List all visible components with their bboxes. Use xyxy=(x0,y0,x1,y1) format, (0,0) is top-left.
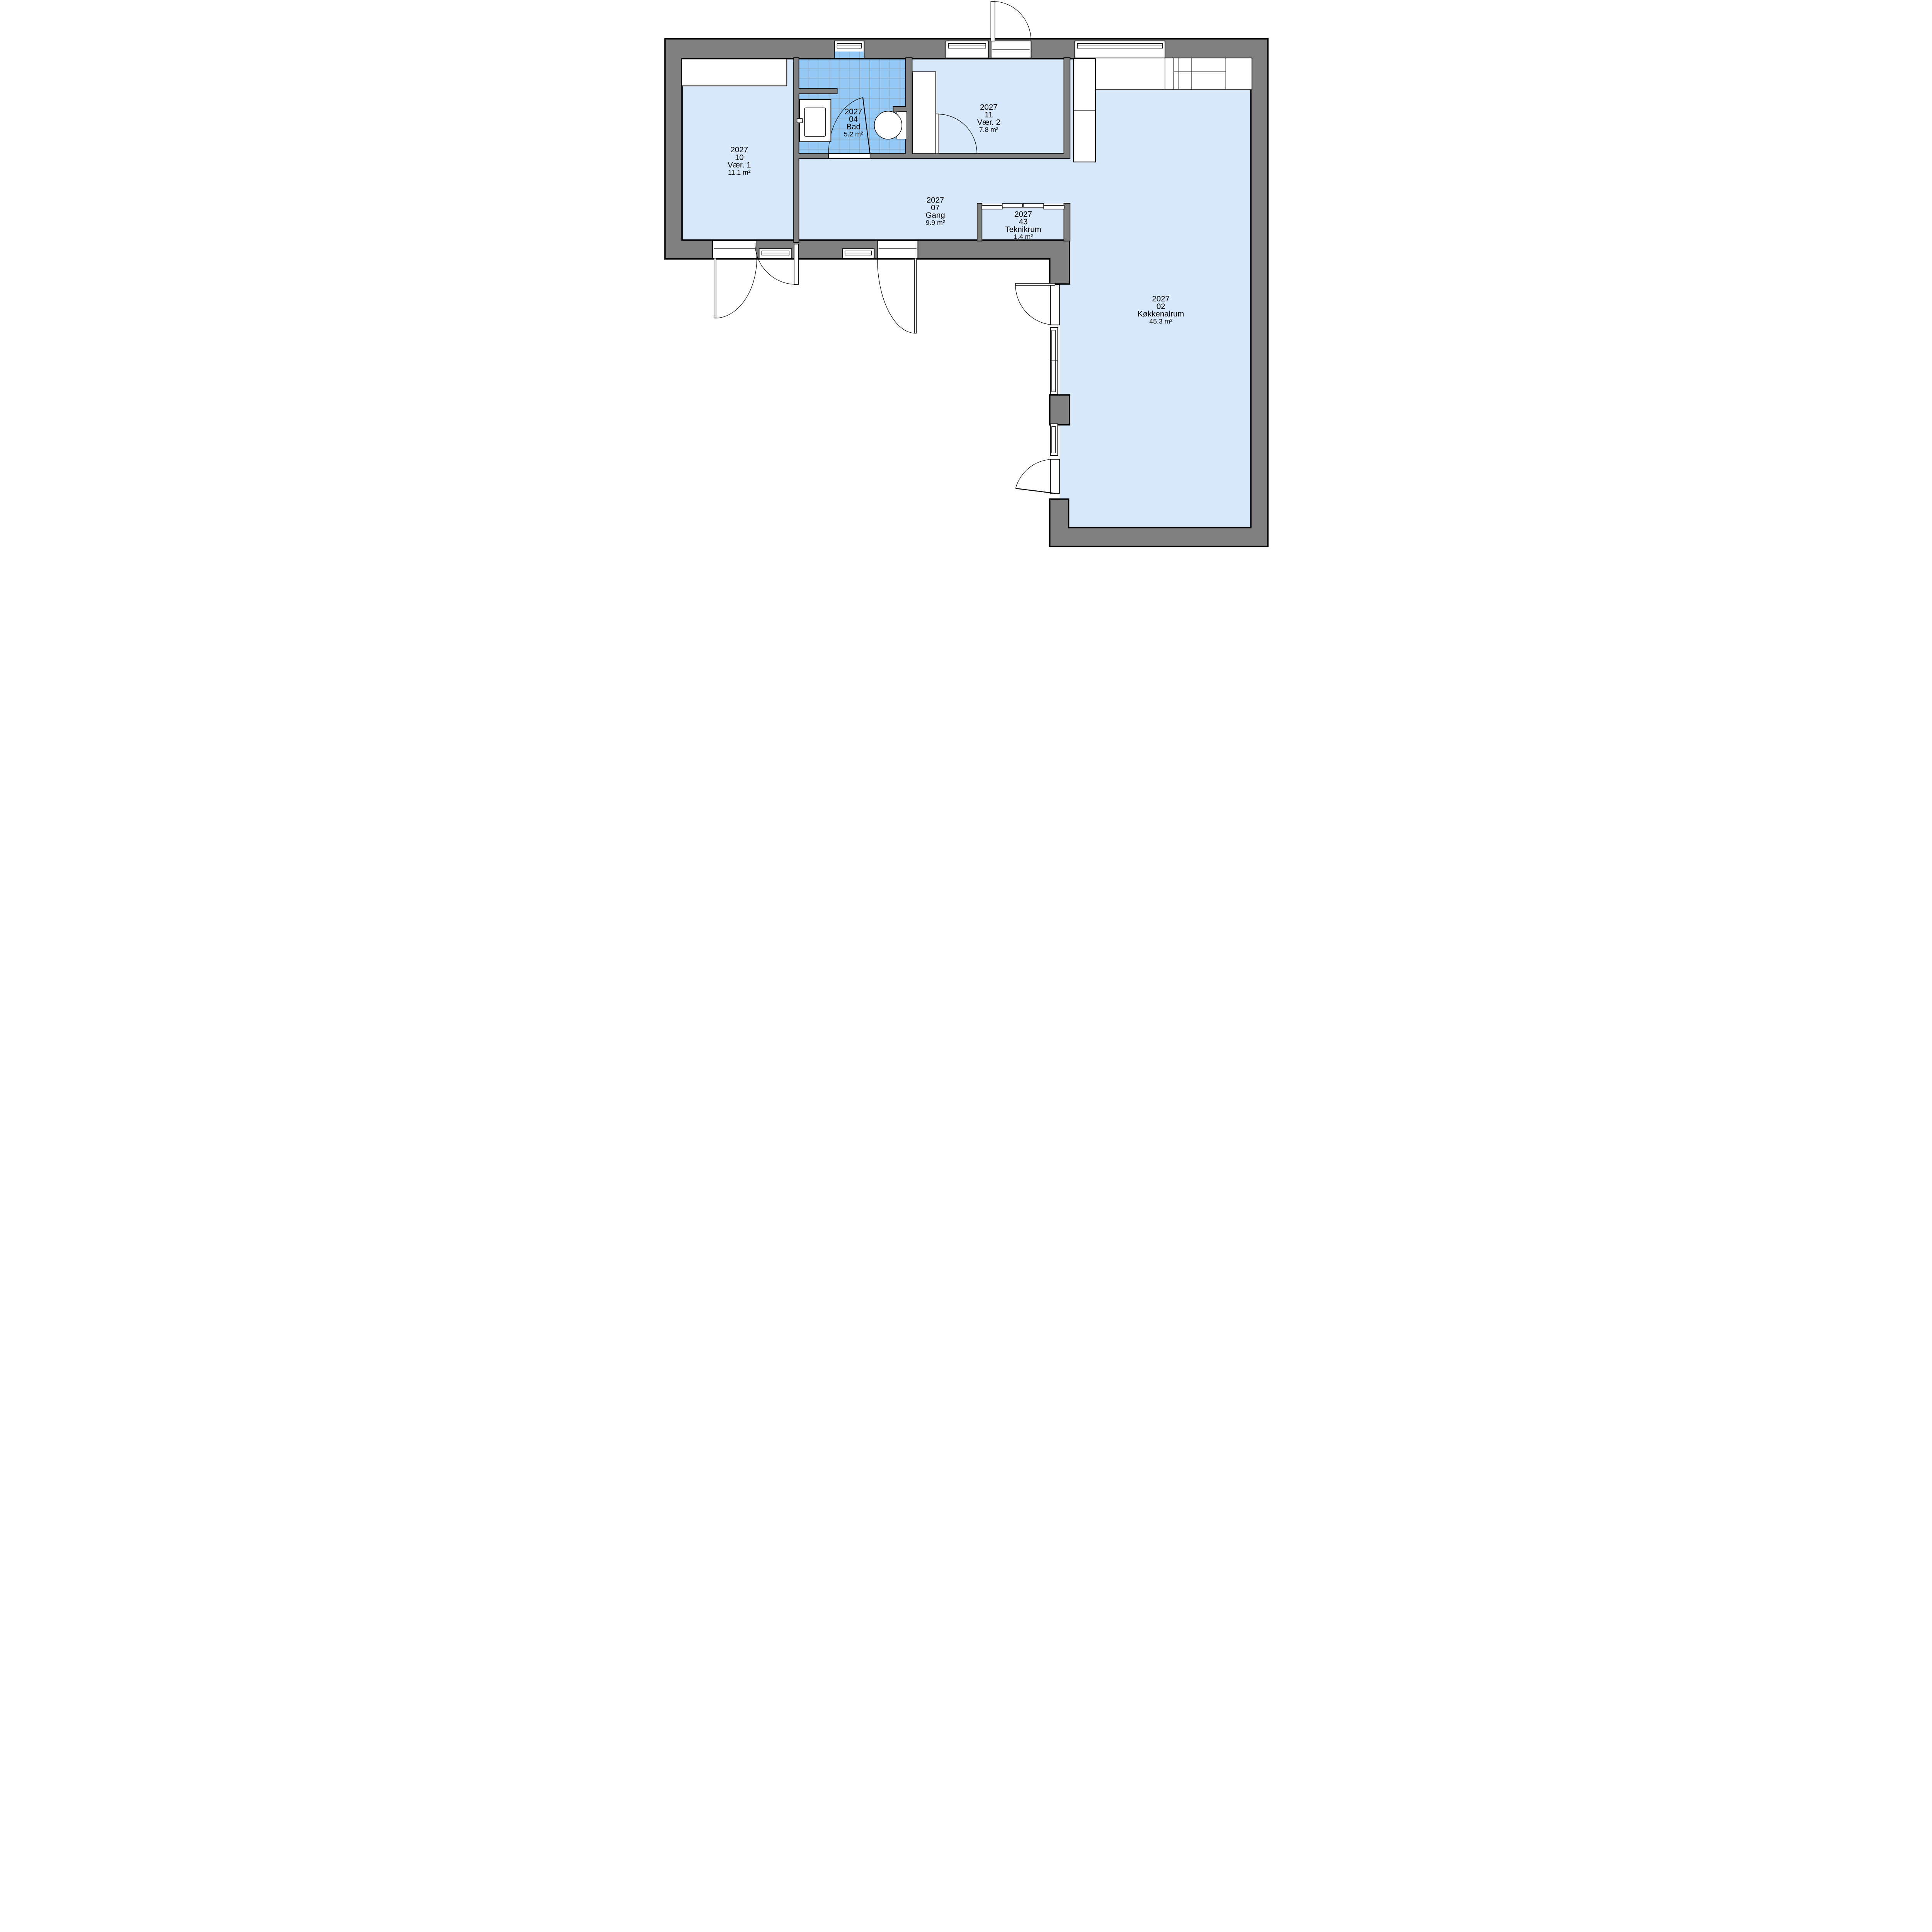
door-divider xyxy=(1022,204,1023,207)
room-name: Teknikrum xyxy=(1005,225,1041,234)
room-label-bedroom1: 2027 10 Vær. 1 11.1 m² xyxy=(728,145,751,176)
room-name: Køkkenalrum xyxy=(1138,310,1184,318)
room-label-bedroom2: 2027 11 Vær. 2 7.8 m² xyxy=(977,103,1000,133)
entry-door xyxy=(991,2,1031,58)
door-arc xyxy=(715,258,757,318)
room-name: Vær. 2 xyxy=(977,118,1000,127)
kitchen-left-door-upper xyxy=(1015,283,1059,325)
floor-plan-svg: 2027 10 Vær. 1 11.1 m² 2027 04 Bad 5.2 m… xyxy=(664,0,1269,548)
room-area: 11.1 m² xyxy=(728,168,751,176)
entry-door-arc xyxy=(993,2,1031,41)
room-name: Vær. 1 xyxy=(728,160,751,169)
door-arc xyxy=(877,258,915,333)
sink xyxy=(804,108,825,136)
kitchen-left-window-lower xyxy=(1050,424,1058,456)
kitchen-left-door-lower xyxy=(1015,459,1060,493)
door-leaf xyxy=(914,258,916,333)
room-name: Bad xyxy=(846,122,860,131)
door-leaf xyxy=(935,114,939,154)
hall-window xyxy=(842,249,874,259)
room-label-hall: 2027 07 Gang 9.9 m² xyxy=(925,196,945,226)
room-area: 7.8 m² xyxy=(979,126,998,133)
toilet xyxy=(874,111,906,139)
room-label-bathroom: 2027 04 Bad 5.2 m² xyxy=(844,107,863,138)
room-area: 45.3 m² xyxy=(1149,318,1172,325)
bedroom1-closet xyxy=(681,59,787,86)
kitchen-counter xyxy=(1095,58,1252,90)
door-leaf xyxy=(1015,488,1055,493)
room-area: 5.2 m² xyxy=(844,130,863,138)
faucet xyxy=(797,119,802,123)
floor-plan: 2027 10 Vær. 1 11.1 m² 2027 04 Bad 5.2 m… xyxy=(664,0,1269,548)
door-arc xyxy=(1015,285,1054,325)
bedroom1-window xyxy=(759,249,792,259)
floors xyxy=(681,58,1252,528)
room-area: 9.9 m² xyxy=(925,219,945,226)
toilet-bowl xyxy=(874,111,901,139)
kitchen-tall-cabinet xyxy=(1073,58,1095,162)
bedroom2-wardrobe xyxy=(912,72,936,154)
door-leaf xyxy=(794,244,798,285)
entry-door-leaf xyxy=(991,2,995,41)
bedroom2-window xyxy=(946,41,988,58)
kitchen-left-window-tall xyxy=(1050,328,1058,395)
bathroom-vanity xyxy=(797,99,831,142)
door-leaf xyxy=(714,258,716,318)
bedroom1-exterior-door xyxy=(713,241,757,318)
kitchen-window xyxy=(1075,41,1165,58)
room-area: 1.4 m² xyxy=(1014,233,1033,241)
room-floors xyxy=(681,58,1252,528)
bathroom-window-niche xyxy=(835,51,864,58)
hall-exterior-door xyxy=(877,241,918,333)
door-arc xyxy=(1015,459,1055,488)
room-name: Gang xyxy=(925,211,945,220)
door-leaf xyxy=(1015,283,1054,285)
